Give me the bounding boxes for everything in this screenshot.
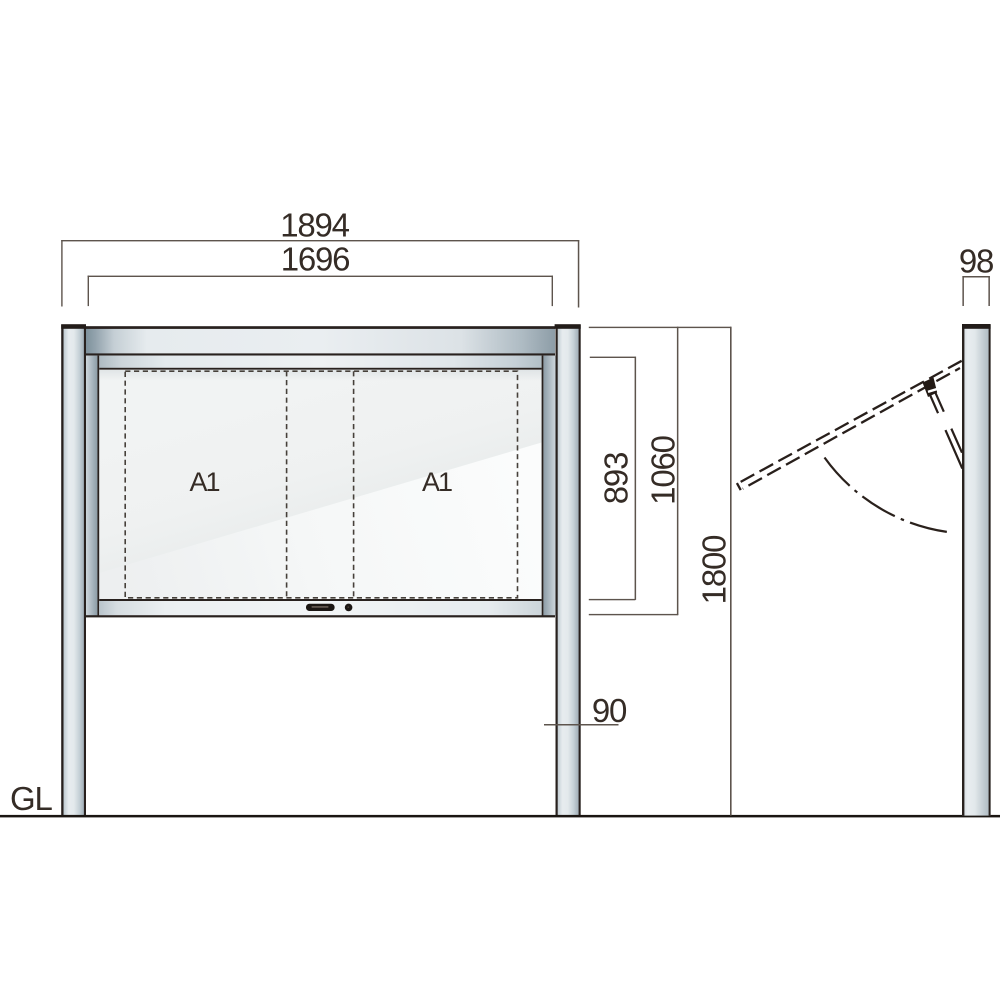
svg-text:A1: A1 — [189, 467, 219, 497]
svg-text:1894: 1894 — [280, 207, 349, 244]
svg-text:1060: 1060 — [645, 435, 682, 504]
svg-text:GL: GL — [10, 780, 52, 817]
svg-text:1800: 1800 — [696, 535, 733, 604]
svg-text:1696: 1696 — [281, 241, 350, 278]
svg-text:90: 90 — [592, 692, 627, 729]
svg-text:98: 98 — [959, 243, 993, 280]
svg-text:A1: A1 — [422, 467, 452, 497]
svg-text:893: 893 — [598, 453, 635, 504]
